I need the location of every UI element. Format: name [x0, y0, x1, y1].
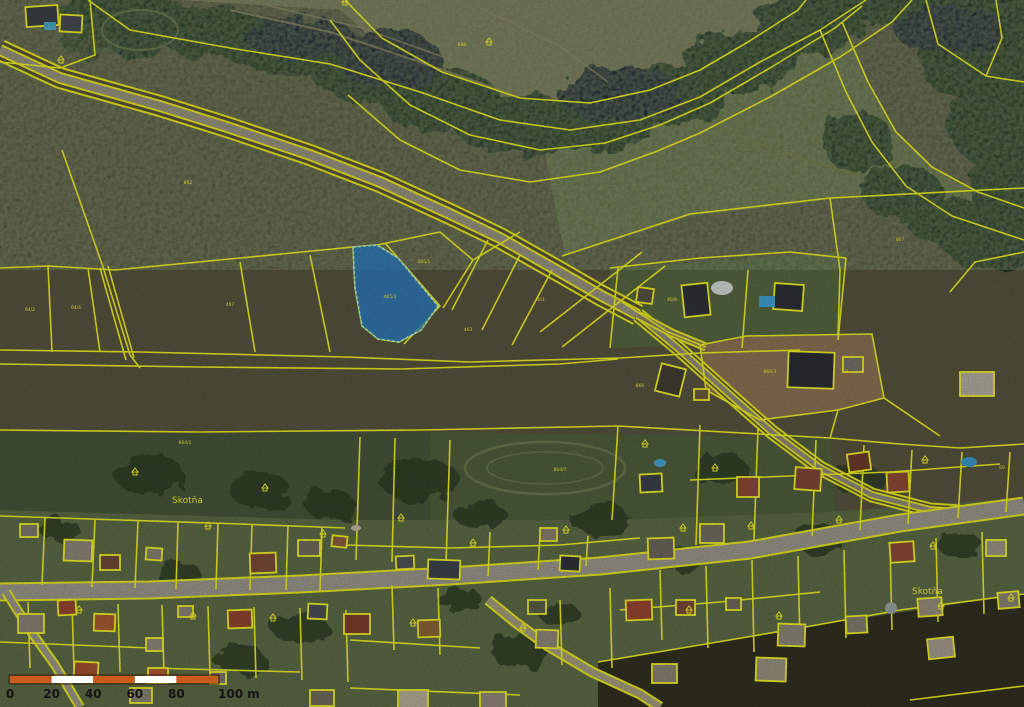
cadastral-map[interactable]: 465/2465/146346764/264/440/140/8866866/3… [0, 0, 1024, 707]
grain-overlay [0, 0, 1024, 707]
scalebar-label: 20 [43, 687, 60, 701]
scalebar-segment [135, 676, 177, 683]
map-viewport[interactable]: 465/2465/146346764/264/440/140/8866866/3… [0, 0, 1024, 707]
scalebar-label: 100 m [218, 687, 260, 701]
scalebar-segment [52, 676, 94, 683]
scalebar-segment [176, 676, 218, 683]
scalebar-label: 60 [126, 687, 143, 701]
scalebar-label: 80 [168, 687, 185, 701]
scalebar-segment [10, 676, 52, 683]
scalebar-label: 40 [85, 687, 102, 701]
scalebar-label: 0 [6, 687, 14, 701]
scalebar-segment [93, 676, 135, 683]
